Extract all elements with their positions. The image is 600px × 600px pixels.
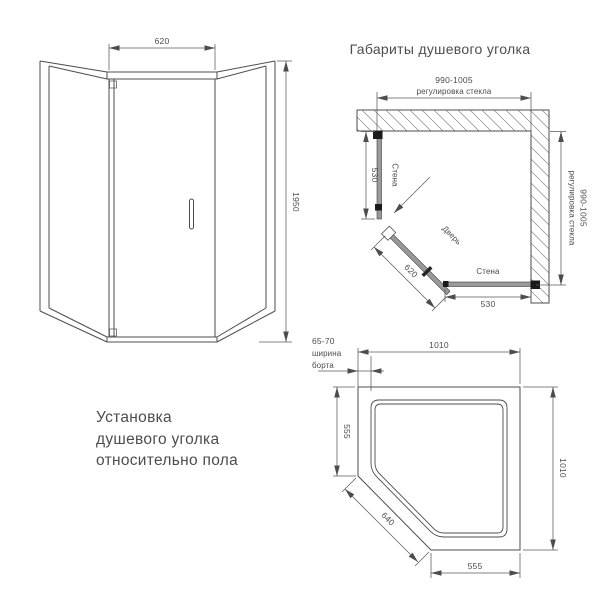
tray-view: 65-70 ширина борта 1010 555 640 bbox=[312, 336, 568, 578]
rim-note-1: 65-70 bbox=[312, 336, 335, 346]
plan-door bbox=[381, 226, 452, 297]
front-view: 620 1950 bbox=[40, 36, 301, 342]
caption-line-2: душевого уголка bbox=[96, 431, 219, 448]
front-height-dim: 1950 bbox=[291, 192, 301, 212]
plan-left-glass-bracket bbox=[375, 204, 382, 211]
front-view-door bbox=[109, 79, 215, 337]
caption: Установка душевого уголка относительно п… bbox=[96, 409, 238, 469]
plan-walls-hatched bbox=[357, 110, 549, 303]
tray-top-dim: 1010 bbox=[429, 340, 449, 350]
tray-left-dim: 555 bbox=[342, 424, 352, 439]
plan-bottom-glass-bracket bbox=[443, 281, 449, 287]
tray-inner-rim-2 bbox=[375, 404, 503, 533]
plan-view: Габариты душевого уголка 990-1005 регули… bbox=[350, 41, 589, 311]
plan-door-label: Дверь bbox=[440, 224, 463, 247]
front-view-dimensions: 620 1950 bbox=[109, 36, 301, 342]
plan-right-dim-note: регулировка стекла bbox=[568, 171, 577, 246]
caption-line-3: относительно пола bbox=[96, 452, 238, 469]
plan-left-glass-dim: 530 bbox=[370, 168, 380, 183]
shower-enclosure-drawing: 620 1950 Габариты душевого уголка bbox=[0, 0, 600, 600]
tray-right-dim: 1010 bbox=[558, 458, 568, 478]
door-hinge-top bbox=[110, 81, 117, 88]
plan-bottom-glass bbox=[445, 282, 531, 287]
tray-dimensions: 65-70 ширина борта 1010 555 640 bbox=[312, 336, 568, 578]
front-width-dim: 620 bbox=[155, 36, 170, 46]
tray-outer-edge bbox=[358, 387, 520, 550]
plan-title: Габариты душевого уголка bbox=[350, 41, 531, 57]
door-hinge-bottom bbox=[110, 329, 117, 336]
plan-bottom-glass-dim: 530 bbox=[481, 299, 496, 309]
plan-top-dim: 990-1005 bbox=[435, 75, 473, 85]
plan-right-dim: 990-1005 bbox=[579, 189, 589, 227]
rim-note-3: борта bbox=[312, 361, 334, 370]
rim-note-2: ширина bbox=[312, 349, 342, 358]
caption-line-1: Установка bbox=[96, 409, 172, 426]
door-handle bbox=[190, 199, 194, 229]
drawing-canvas: 620 1950 Габариты душевого уголка bbox=[0, 0, 600, 600]
plan-left-glass-label: Стена bbox=[391, 163, 400, 187]
plan-top-dim-note: регулировка стекла bbox=[417, 87, 492, 96]
tray-bottom-dim: 555 bbox=[468, 561, 483, 571]
front-view-frame bbox=[40, 61, 275, 342]
plan-bottom-glass-label: Стена bbox=[476, 267, 500, 276]
